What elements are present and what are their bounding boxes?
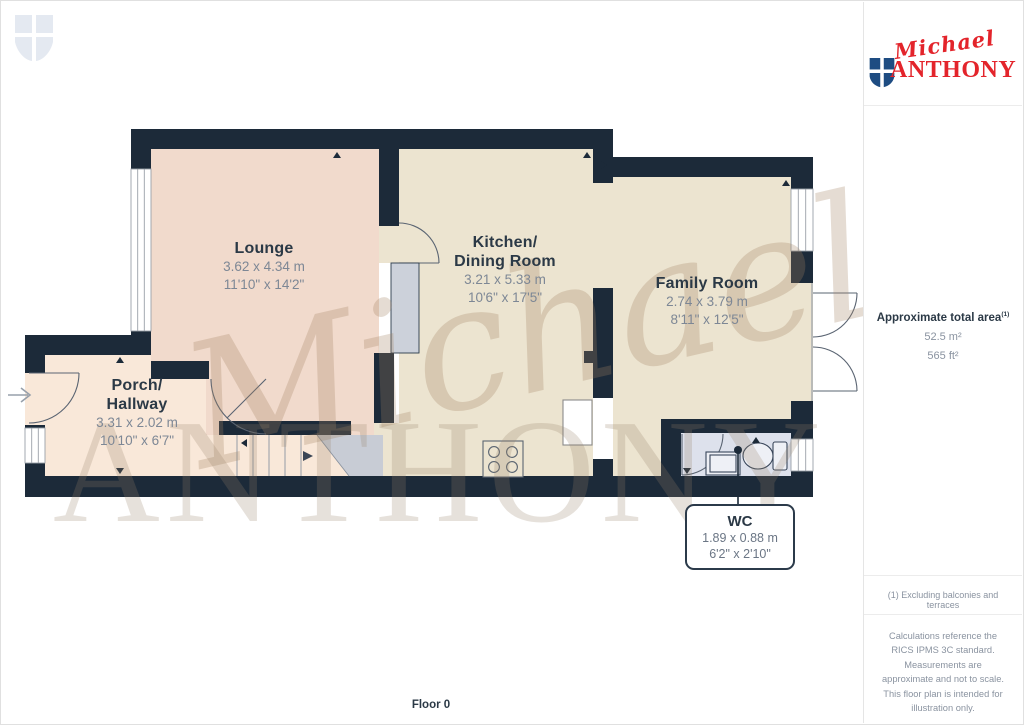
area-imperial: 565 ft² — [864, 350, 1022, 362]
calc-block: Calculations reference the RICS IPMS 3C … — [864, 614, 1022, 723]
room-label-porch: Porch/ Hallway 3.31 x 2.02 m 10'10" x 6'… — [96, 376, 178, 450]
footnote: (1) Excluding balconies and terraces — [878, 590, 1008, 610]
room-dims-metric: 3.31 x 2.02 m — [96, 414, 178, 432]
room-dims-imperial: 10'10" x 6'7" — [96, 432, 178, 450]
sidebar: Michael ANTHONY Approximate total area(1… — [863, 2, 1022, 723]
room-label-kitchen: Kitchen/ Dining Room 3.21 x 5.33 m 10'6"… — [454, 233, 556, 307]
room-name-line2: Dining Room — [454, 252, 556, 271]
wc-callout: WC 1.89 x 0.88 m 6'2" x 2'10" — [685, 504, 795, 570]
room-name-line1: Porch/ — [96, 376, 178, 395]
room-dims-imperial: 8'11" x 12'5" — [656, 311, 759, 329]
area-metric: 52.5 m² — [864, 331, 1022, 343]
room-dims-imperial: 6'2" x 2'10" — [687, 546, 793, 562]
room-dims-metric: 3.62 x 4.34 m — [223, 258, 305, 276]
room-dims-metric: 3.21 x 5.33 m — [454, 271, 556, 289]
room-label-lounge: Lounge 3.62 x 4.34 m 11'10" x 14'2" — [223, 239, 305, 294]
room-dims-metric: 2.74 x 3.79 m — [656, 293, 759, 311]
brand-name: ANTHONY — [890, 57, 1016, 84]
room-name-line2: Hallway — [96, 395, 178, 414]
room-name-line1: Kitchen/ — [454, 233, 556, 252]
room-dims-imperial: 10'6" x 17'5" — [454, 289, 556, 307]
room-name: Family Room — [656, 274, 759, 293]
brand-logo: Michael ANTHONY — [864, 2, 1022, 106]
footnote-block: (1) Excluding balconies and terraces — [864, 575, 1022, 610]
room-name: WC — [687, 513, 793, 530]
area-summary: Approximate total area(1) 52.5 m² 565 ft… — [864, 311, 1022, 362]
floor-label: Floor 0 — [412, 699, 450, 711]
area-title: Approximate total area(1) — [864, 311, 1022, 324]
room-dims-imperial: 11'10" x 14'2" — [223, 276, 305, 294]
room-name: Lounge — [223, 239, 305, 258]
floorplan-page: Michael ANTHONY Lounge 3.62 x 4.34 m 11'… — [0, 0, 1024, 725]
room-dims-metric: 1.89 x 0.88 m — [687, 530, 793, 546]
area-title-text: Approximate total area — [877, 312, 1002, 324]
disclaimer: Calculations reference the RICS IPMS 3C … — [880, 629, 1006, 715]
area-note-ref: (1) — [1001, 311, 1009, 318]
room-label-family: Family Room 2.74 x 3.79 m 8'11" x 12'5" — [656, 274, 759, 329]
corner-shield-icon — [15, 15, 53, 61]
